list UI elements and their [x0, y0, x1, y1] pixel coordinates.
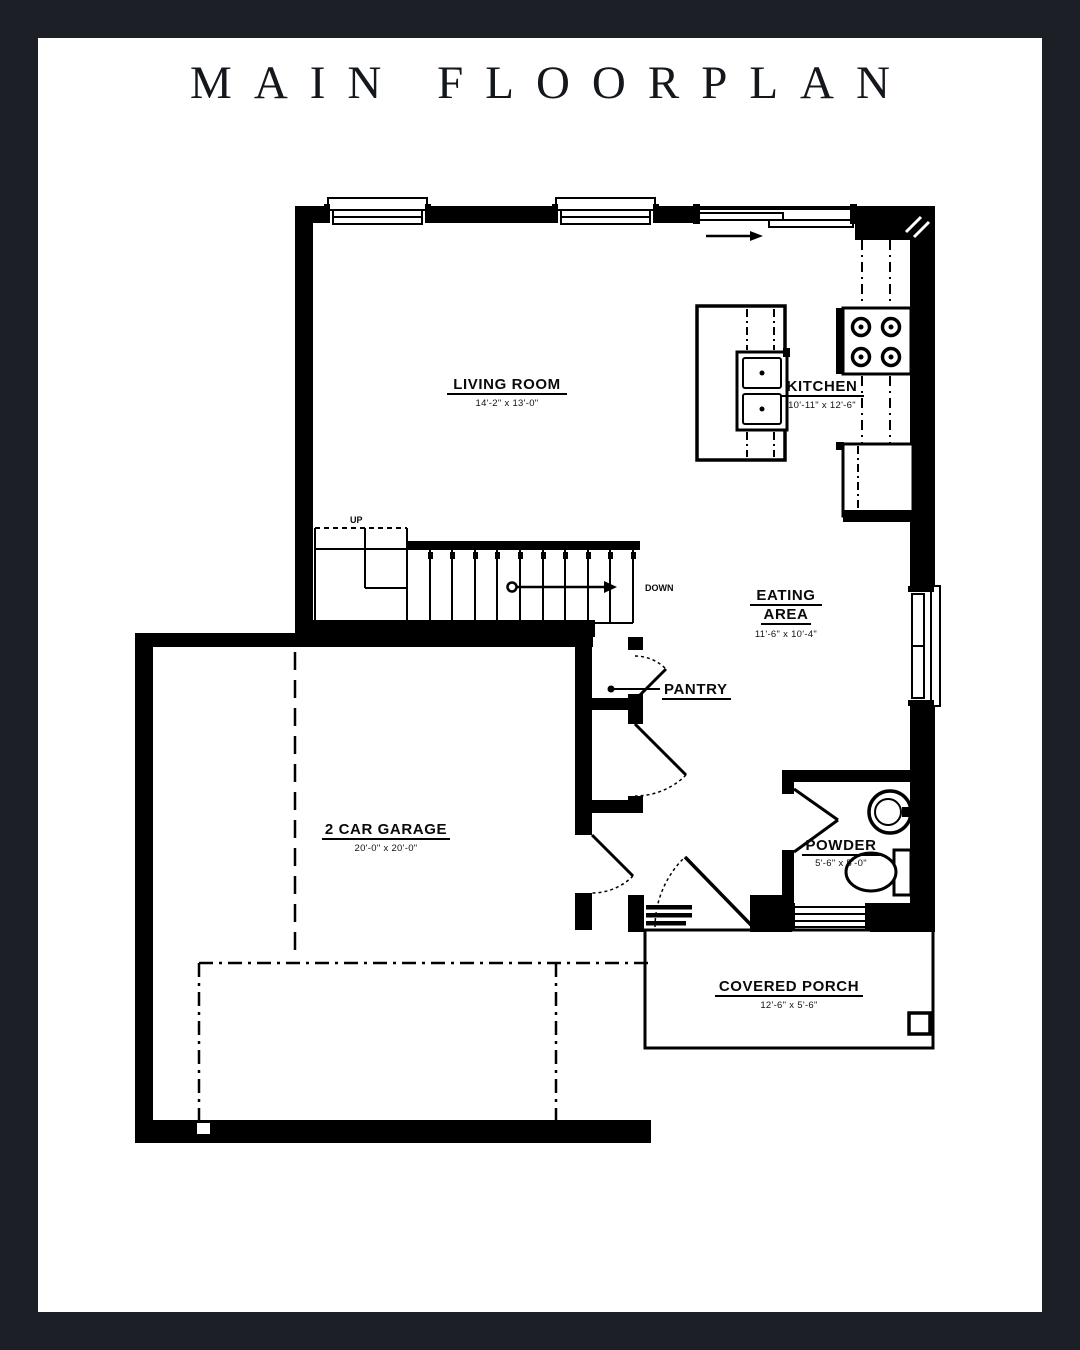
room-label-garage: 2 CAR GARAGE — [325, 821, 447, 838]
room-dims-eating: 11'-6" x 10'-4" — [755, 629, 817, 640]
window-icon — [552, 198, 659, 224]
pantry-leader-dot — [608, 686, 615, 693]
room-label-eating-2: AREA — [764, 606, 809, 623]
powder-sink-icon — [869, 791, 912, 833]
room-dims-porch: 12'-6" x 5'-6" — [760, 1000, 817, 1011]
window-icon — [789, 903, 871, 930]
garage-entry-door-swing — [592, 835, 633, 893]
closet-door-swing — [635, 724, 686, 796]
room-dims-kitchen: 10'-11" x 12'-6" — [788, 400, 856, 411]
toilet-icon — [846, 850, 911, 895]
room-label-porch: COVERED PORCH — [719, 978, 859, 995]
cooktop-icon — [836, 308, 911, 374]
porch-post — [909, 1013, 930, 1034]
stairs — [315, 528, 640, 623]
window-icon — [908, 586, 940, 706]
room-dims-garage: 20'-0" x 20'-0" — [355, 843, 418, 854]
window-icon — [324, 198, 431, 224]
stairs-down-label: DOWN — [645, 583, 674, 593]
entry-steps — [646, 905, 692, 926]
room-label-powder: POWDER — [805, 837, 876, 854]
room-label-kitchen: KITCHEN — [787, 378, 858, 395]
floorplan-drawing: LIVING ROOM 14'-2" x 13'-0" KITCHEN 10'-… — [0, 0, 1080, 1350]
sink-icon — [737, 348, 790, 430]
room-label-living: LIVING ROOM — [453, 376, 560, 393]
room-label-pantry: PANTRY — [664, 681, 728, 698]
stairs-up-label: UP — [350, 515, 363, 525]
pantry-door-swing — [635, 656, 666, 700]
fridge-icon — [836, 442, 913, 522]
room-dims-powder: 5'-6" x 5'-0" — [815, 858, 867, 869]
room-dims-living: 14'-2" x 13'-0" — [476, 398, 539, 409]
room-label-eating-1: EATING — [756, 587, 815, 604]
